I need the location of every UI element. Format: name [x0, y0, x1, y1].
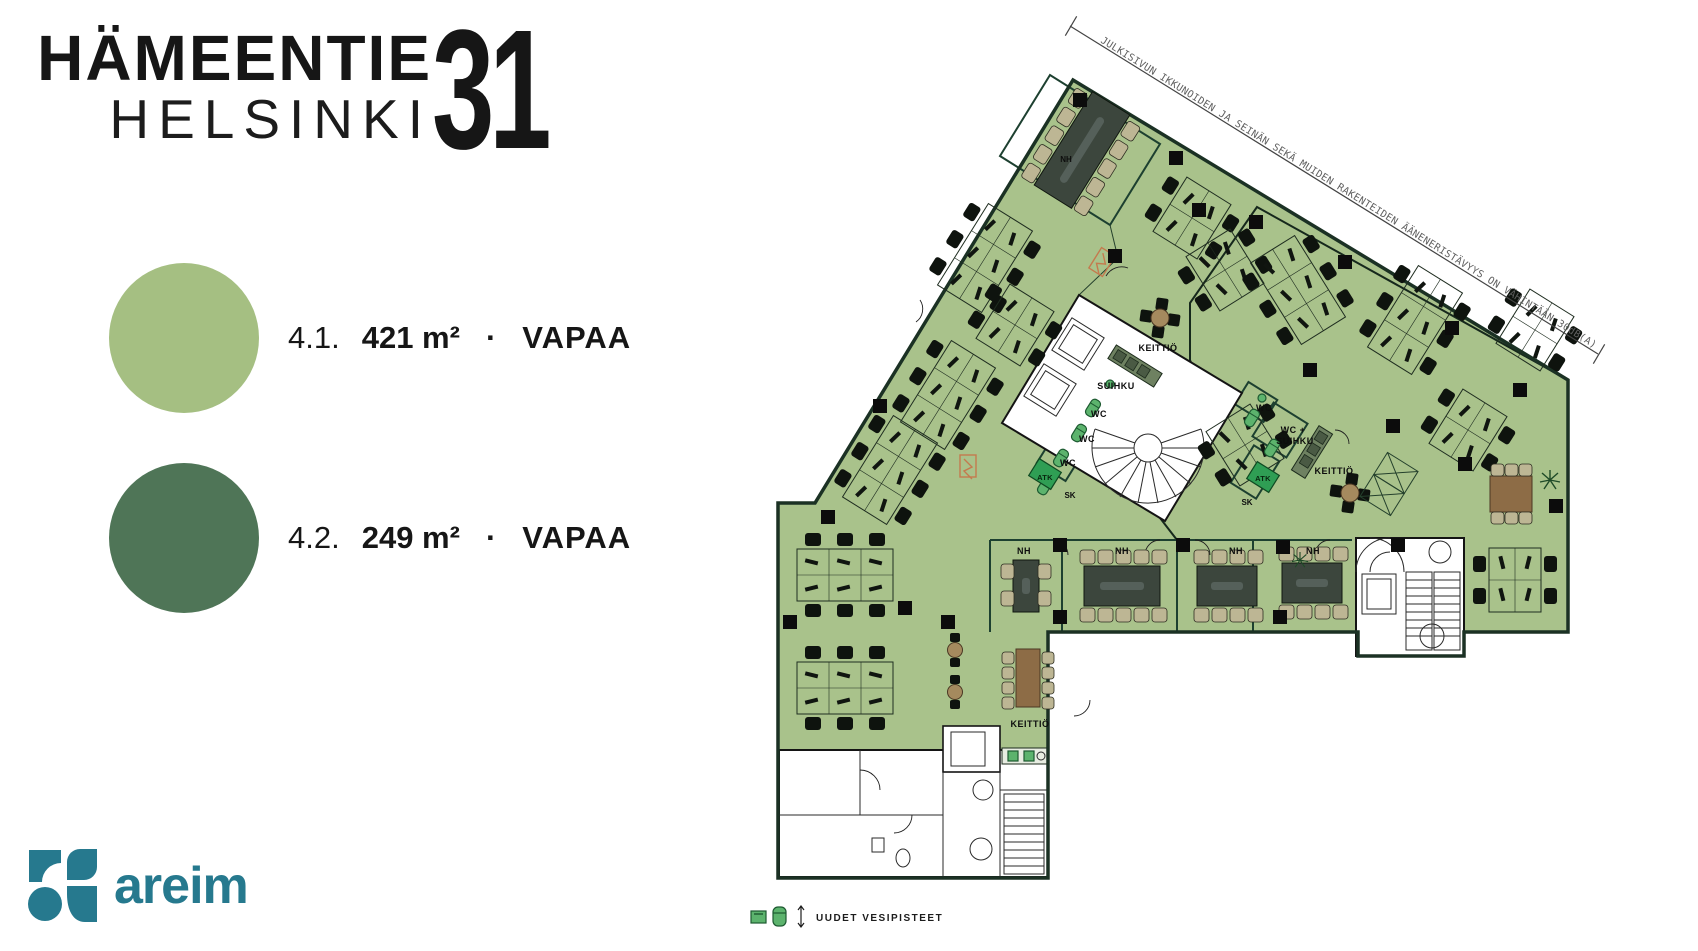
room-label-nh-2: NH [1115, 546, 1129, 556]
room-label-suihku-dark: SUIHKU [1276, 436, 1314, 446]
room-label-nh-4: NH [1306, 546, 1320, 556]
room-label-nh-top: NH [1060, 155, 1072, 164]
room-label-sk-dark: SK [1241, 498, 1252, 507]
legend-note: UUDET VESIPISTEET [816, 913, 943, 924]
room-label-suihku-light: SUIHKU [1097, 381, 1135, 391]
room-label-wc-dark: WC [1256, 403, 1272, 413]
room-label-nh-3: NH [1229, 546, 1243, 556]
room-label-wc-1: WC [1091, 409, 1107, 419]
room-label-keittio-light: KEITTIÖ [1139, 343, 1178, 353]
water-point-counter-icon [751, 911, 766, 923]
room-label-atk-light: ATK [1037, 473, 1053, 482]
room-label-nh-1: NH [1017, 546, 1031, 556]
stairwell-right [1356, 538, 1464, 656]
room-label-sk-light: SK [1064, 491, 1075, 500]
room-label-wc-3: WC [1060, 458, 1076, 468]
kitchen-counter-bottom [1002, 748, 1048, 764]
floor-plan: NH KEITTIÖ SUIHKU WC WC WC ATK SK NH NH … [0, 0, 1698, 951]
room-label-wc-2: WC [1079, 434, 1095, 444]
room-label-keittio-bottom: KEITTIÖ [1011, 719, 1050, 729]
room-label-wc-plus: WC + [1281, 425, 1306, 435]
plan-legend: UUDET VESIPISTEET [751, 906, 943, 927]
water-point-wc-icon [773, 907, 786, 926]
room-label-keittio-dark: KEITTIÖ [1315, 466, 1354, 476]
room-label-atk-dark: ATK [1255, 474, 1271, 483]
water-point-symbol-icon [798, 906, 804, 927]
